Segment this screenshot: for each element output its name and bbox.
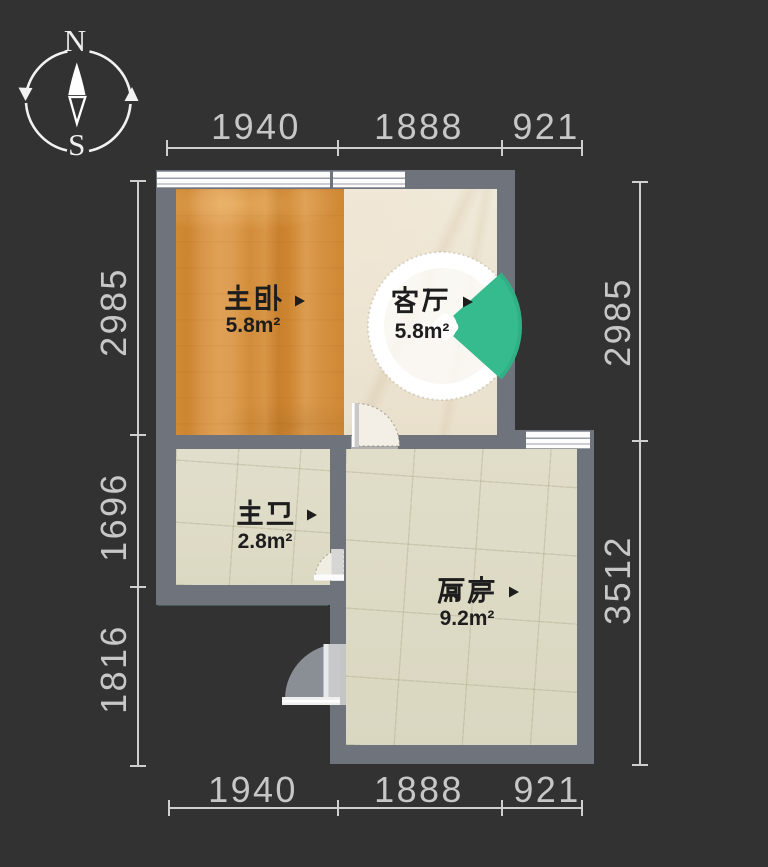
svg-text:S: S (68, 127, 85, 162)
svg-text:N: N (64, 23, 86, 58)
